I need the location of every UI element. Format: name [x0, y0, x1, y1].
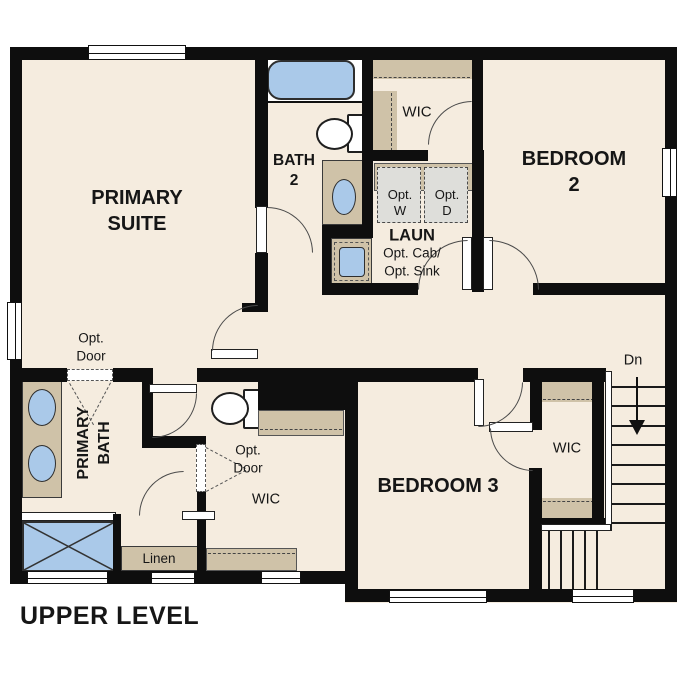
shower-x-icon — [24, 523, 113, 570]
label-opt-dryer: Opt. D — [435, 187, 460, 220]
label-opt-door-suite: Opt. Door — [76, 329, 105, 364]
wall — [345, 368, 478, 382]
window — [151, 572, 195, 584]
label-stairs-down: Dn — [624, 352, 643, 371]
wic-top-shelf-line — [374, 77, 470, 78]
wall — [592, 368, 604, 530]
primary-sink-1-icon — [28, 389, 56, 426]
window — [27, 571, 108, 584]
wall — [345, 571, 358, 602]
window — [662, 148, 677, 197]
bathtub — [267, 60, 355, 100]
wall — [255, 253, 268, 310]
stair-tread — [572, 531, 574, 589]
room-label-linen: Linen — [142, 550, 175, 568]
wall — [197, 490, 206, 571]
wall — [113, 514, 121, 571]
bath-door-leaf — [182, 511, 215, 520]
wall — [533, 283, 665, 295]
stair-rail — [605, 371, 612, 531]
room-label-wic-top: WIC — [402, 102, 431, 122]
wall — [530, 368, 542, 430]
wall — [10, 368, 67, 382]
stair-tread — [612, 522, 665, 524]
wall — [362, 60, 373, 238]
page-title: UPPER LEVEL — [20, 602, 199, 631]
stair-tread — [612, 405, 665, 407]
wall — [345, 380, 358, 572]
window — [88, 45, 186, 60]
stair-tread — [596, 531, 598, 589]
floor-plan: PRIMARY SUITE BATH 2 WIC Opt. W Opt. D L… — [0, 0, 687, 687]
window — [572, 589, 634, 603]
wall — [322, 283, 418, 295]
opt-door-suite-opening — [67, 369, 113, 381]
room-label-primary-suite: PRIMARY SUITE — [91, 185, 182, 237]
stair-tread — [560, 531, 562, 589]
room-label-primary-bath: PRIMARY BATH — [74, 406, 116, 479]
wic-mid-shelf-bottom — [206, 548, 297, 571]
stair-tread — [612, 464, 665, 466]
primary-toilet-icon — [211, 392, 249, 425]
wall — [322, 225, 370, 238]
wall — [255, 60, 268, 208]
bath2-door-leaf — [256, 206, 267, 253]
laundry-sink-icon — [339, 247, 365, 277]
bath2-toilet-icon — [316, 118, 353, 150]
room-label-bedroom2: BEDROOM 2 — [518, 146, 631, 198]
room-label-bedroom3: BEDROOM 3 — [377, 473, 498, 499]
stair-tread — [612, 503, 665, 505]
wall — [665, 47, 677, 602]
wic-left-shelf-line — [391, 93, 392, 151]
primary-sink-2-icon — [28, 445, 56, 482]
wic-mid-shelf-top-line — [260, 429, 342, 430]
label-laundry-options: Opt. Cab/ Opt. Sink — [383, 244, 441, 279]
label-opt-washer: Opt. W — [388, 187, 413, 220]
shower-curb — [20, 512, 116, 521]
window — [261, 571, 301, 584]
stair-landing-rail — [541, 524, 611, 531]
bath2-sink-icon — [332, 179, 356, 215]
wic-mid-shelf-top — [258, 410, 344, 436]
wic-b3-shelf-bottom-line — [543, 501, 594, 502]
stair-tread — [612, 483, 665, 485]
wall — [472, 60, 483, 161]
toilet-room-door-leaf — [149, 384, 197, 393]
wic-mid-shelf-bottom-line — [208, 553, 295, 554]
opt-door-wic-opening — [196, 444, 206, 492]
stair-down-arrow — [636, 377, 638, 422]
room-label-bath2: BATH 2 — [273, 151, 315, 191]
window — [7, 302, 22, 360]
window — [389, 590, 487, 603]
wic-left-shelf — [372, 91, 397, 153]
shower — [22, 521, 115, 572]
wic-b3-shelf-top-line — [543, 399, 594, 400]
wall-chase — [258, 368, 345, 410]
label-opt-door-wic: Opt. Door — [233, 441, 262, 476]
stair-tread — [584, 531, 586, 589]
stair-arrow-head-icon — [629, 420, 645, 435]
room-label-wic-mid: WIC — [252, 491, 280, 510]
wall — [197, 368, 259, 382]
stair-tread — [548, 531, 550, 589]
stair-tread — [612, 444, 665, 446]
wall — [362, 150, 428, 161]
stair-tread — [612, 386, 665, 388]
room-label-wic-b3: WIC — [553, 440, 581, 459]
